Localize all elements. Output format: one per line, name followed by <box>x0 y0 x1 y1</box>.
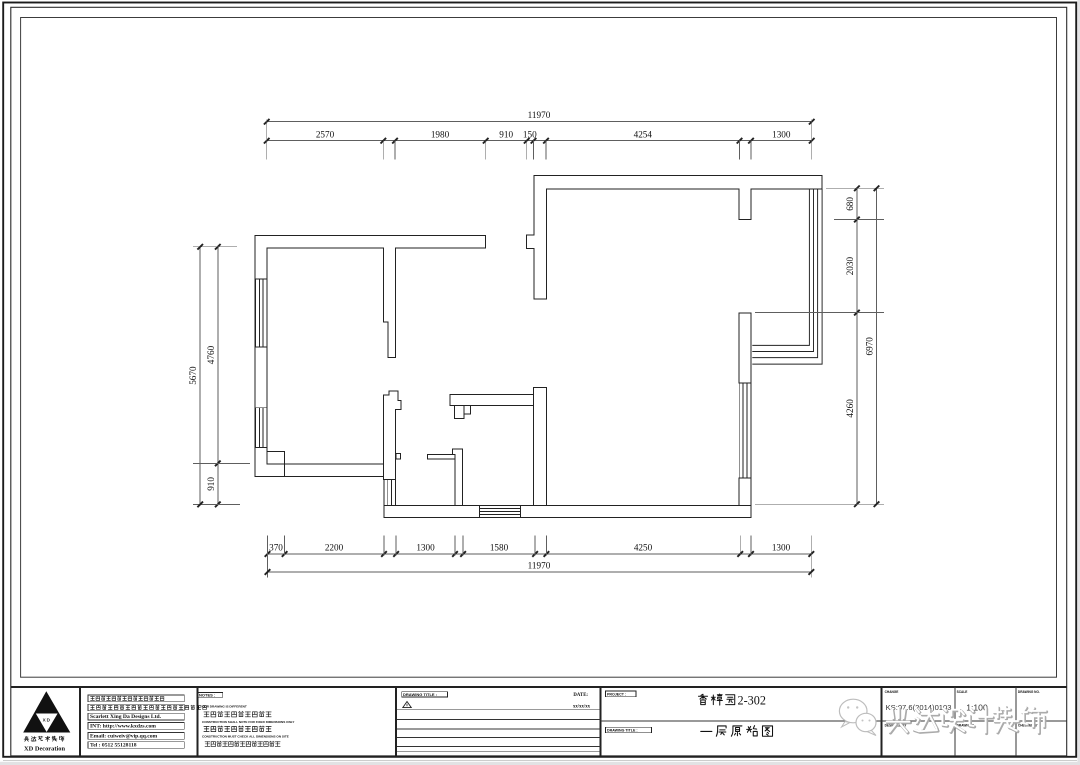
svg-text:680: 680 <box>845 197 855 211</box>
svg-text:1980: 1980 <box>431 129 450 139</box>
svg-text:4254: 4254 <box>634 129 653 139</box>
svg-text:Email: cuiweiv@vip.qq.com: Email: cuiweiv@vip.qq.com <box>90 733 158 739</box>
svg-text:1580: 1580 <box>490 543 509 553</box>
svg-text:DRAWING TITLE :: DRAWING TITLE : <box>403 692 437 697</box>
svg-text:SCALE: SCALE <box>957 690 968 694</box>
svg-text:1300: 1300 <box>416 543 435 553</box>
svg-text:1300: 1300 <box>772 129 791 139</box>
svg-text:DATE:: DATE: <box>573 693 588 698</box>
svg-text:2570: 2570 <box>316 129 335 139</box>
svg-text:Scarlett Xing Da Designs Ltd.: Scarlett Xing Da Designs Ltd. <box>90 714 162 720</box>
svg-text:DRAWING NO.: DRAWING NO. <box>1018 690 1040 694</box>
svg-text:INT: http://www.kxdzs.com: INT: http://www.kxdzs.com <box>90 723 156 729</box>
svg-text:PROJECT :: PROJECT : <box>607 693 626 697</box>
svg-text:11970: 11970 <box>528 561 551 571</box>
svg-text:XD: XD <box>43 717 51 722</box>
svg-text:CONSTRUCTION MUST CHECK ALL DI: CONSTRUCTION MUST CHECK ALL DIMENSIONS O… <box>202 735 289 739</box>
svg-text:CHANGE: CHANGE <box>885 690 899 694</box>
svg-text:11970: 11970 <box>528 110 551 120</box>
svg-text:NOTES :: NOTES : <box>199 692 215 697</box>
svg-text:1300: 1300 <box>772 543 791 553</box>
svg-text:4250: 4250 <box>634 543 653 553</box>
svg-text:CONSTRUCTION SHALL NOTE FOR FI: CONSTRUCTION SHALL NOTE FOR FIXED DIMENS… <box>202 720 295 724</box>
svg-text:150: 150 <box>523 129 537 139</box>
svg-text:6970: 6970 <box>865 337 875 356</box>
svg-text:XD Decoration: XD Decoration <box>24 746 65 753</box>
svg-text:2030: 2030 <box>845 257 855 276</box>
svg-text:4760: 4760 <box>206 345 216 364</box>
svg-text:2-302: 2-302 <box>738 693 766 707</box>
svg-text:DRAWING TITLE :: DRAWING TITLE : <box>607 729 638 733</box>
svg-text:* YOUR DRAWING IS DIFFERENT: * YOUR DRAWING IS DIFFERENT <box>198 704 247 708</box>
svg-text:370: 370 <box>269 543 283 553</box>
svg-text:910: 910 <box>499 129 513 139</box>
svg-text:4260: 4260 <box>845 399 855 418</box>
svg-text:xx/xx/xx: xx/xx/xx <box>573 705 591 710</box>
svg-text:2200: 2200 <box>325 543 344 553</box>
svg-text:Tel : 0512 55128118: Tel : 0512 55128118 <box>90 743 137 749</box>
svg-text:910: 910 <box>206 477 216 491</box>
svg-text:5670: 5670 <box>188 366 198 385</box>
